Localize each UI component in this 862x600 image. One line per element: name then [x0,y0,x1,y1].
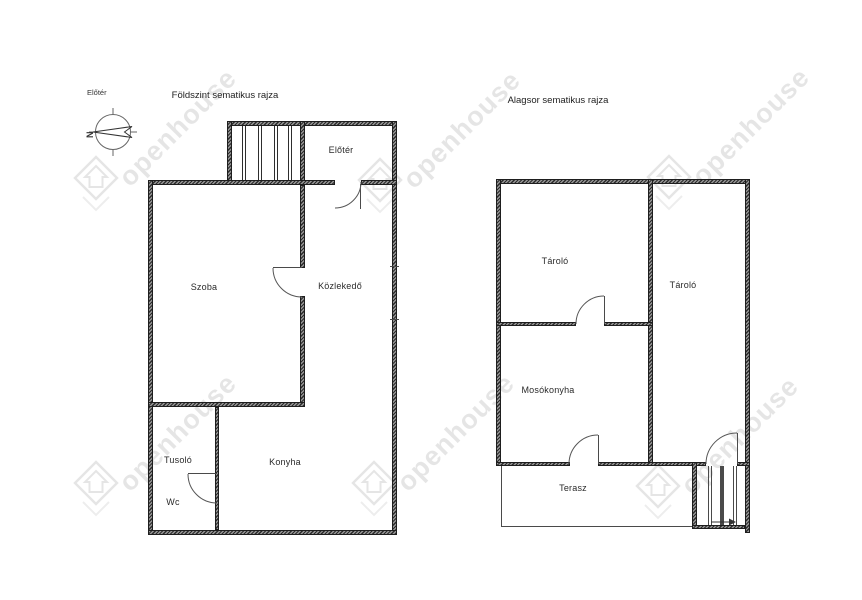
room-label-tarolo-2: Tároló [653,280,713,290]
door-arc-szoba [273,268,302,297]
room-label-tusolo: Tusoló [148,455,208,465]
room-label-terasz: Terasz [543,483,603,493]
room-label-mosokonyha: Mosókonyha [513,385,583,395]
floorplan-sheet: openhouse openhouse openhouse openhouse [0,0,862,600]
room-label-szoba: Szoba [174,282,234,292]
door-arc-terasz [706,433,737,464]
room-label-kozlekedo: Közlekedő [305,281,375,291]
room-label-wc: Wc [143,497,203,507]
room-label-tarolo-1: Tároló [525,256,585,266]
door-arc-mosokonyha [569,435,598,464]
room-label-konyha: Konyha [255,457,315,467]
door-swing-layer [0,0,862,600]
stair-arrow-head-icon [729,519,736,526]
door-arc-eloter [335,182,361,208]
door-arc-tarolo [576,296,604,324]
room-label-eloter: Előtér [311,145,371,155]
